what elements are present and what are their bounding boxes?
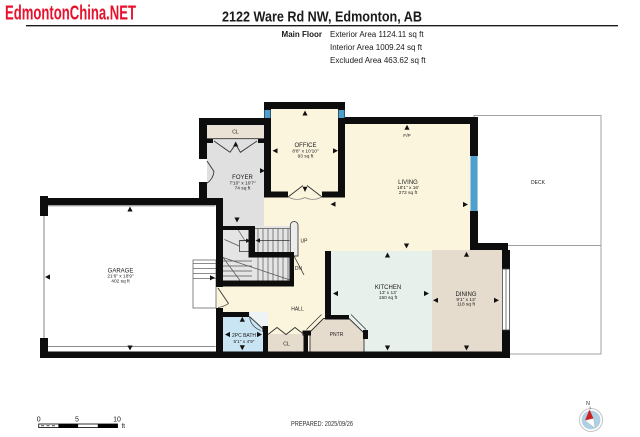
svg-text:2PC BATH: 2PC BATH — [232, 333, 256, 339]
svg-text:DECK: DECK — [531, 180, 546, 186]
svg-text:CL: CL — [232, 130, 239, 136]
svg-text:74 sq ft: 74 sq ft — [235, 186, 251, 192]
svg-text:Exterior Area 1124.11 sq ft: Exterior Area 1124.11 sq ft — [330, 30, 424, 39]
svg-text:FOYER: FOYER — [232, 175, 253, 181]
svg-text:5: 5 — [75, 417, 79, 424]
svg-text:7'10" x 10'7": 7'10" x 10'7" — [229, 181, 256, 187]
svg-text:CL: CL — [283, 341, 290, 347]
svg-text:PREPARED: 2025/09/26: PREPARED: 2025/09/26 — [291, 421, 353, 428]
svg-text:2122 Ware Rd NW, Edmonton, AB: 2122 Ware Rd NW, Edmonton, AB — [222, 9, 422, 26]
svg-text:Interior Area 1009.24 sq ft: Interior Area 1009.24 sq ft — [330, 43, 423, 52]
svg-text:ft: ft — [122, 423, 126, 430]
svg-text:DN: DN — [295, 266, 303, 272]
svg-text:10: 10 — [113, 417, 121, 424]
svg-text:402 sq ft: 402 sq ft — [111, 278, 130, 284]
svg-text:UP: UP — [301, 238, 309, 244]
svg-text:F/P: F/P — [403, 133, 410, 139]
svg-text:GARAGE: GARAGE — [108, 269, 134, 275]
svg-text:Excluded Area 463.62 sq ft: Excluded Area 463.62 sq ft — [330, 56, 426, 65]
svg-text:93 sq ft: 93 sq ft — [298, 153, 314, 159]
svg-text:OFFICE: OFFICE — [295, 143, 317, 149]
svg-text:EdmontonChina.NET: EdmontonChina.NET — [5, 3, 136, 25]
svg-text:150 sq ft: 150 sq ft — [379, 295, 398, 301]
svg-text:5'1" x 4'9": 5'1" x 4'9" — [234, 339, 255, 345]
svg-text:PNTR: PNTR — [330, 332, 344, 338]
svg-text:HALL: HALL — [291, 307, 304, 313]
svg-text:272 sq ft: 272 sq ft — [399, 190, 418, 196]
svg-text:N: N — [586, 401, 590, 407]
svg-text:118 sq ft: 118 sq ft — [457, 301, 476, 307]
svg-text:0: 0 — [37, 417, 41, 424]
svg-text:Main Floor: Main Floor — [282, 30, 322, 39]
